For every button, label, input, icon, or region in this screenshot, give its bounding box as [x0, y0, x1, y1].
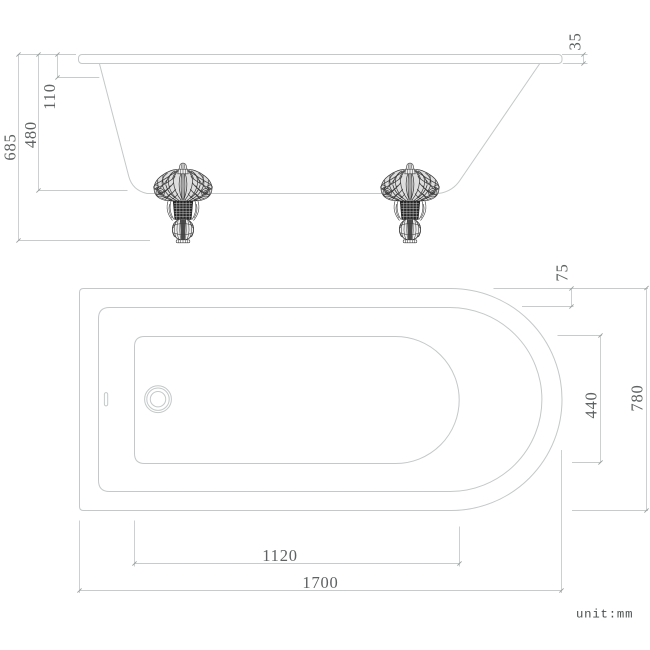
svg-text:685: 685 [1, 133, 20, 160]
svg-text:480: 480 [21, 121, 40, 148]
svg-text:unit:mm: unit:mm [576, 608, 633, 622]
svg-text:35: 35 [565, 32, 584, 50]
svg-text:75: 75 [553, 263, 572, 281]
svg-text:440: 440 [582, 391, 601, 418]
svg-text:110: 110 [40, 83, 59, 110]
svg-text:1120: 1120 [262, 546, 298, 565]
svg-text:780: 780 [628, 384, 647, 411]
svg-text:1700: 1700 [302, 573, 338, 592]
